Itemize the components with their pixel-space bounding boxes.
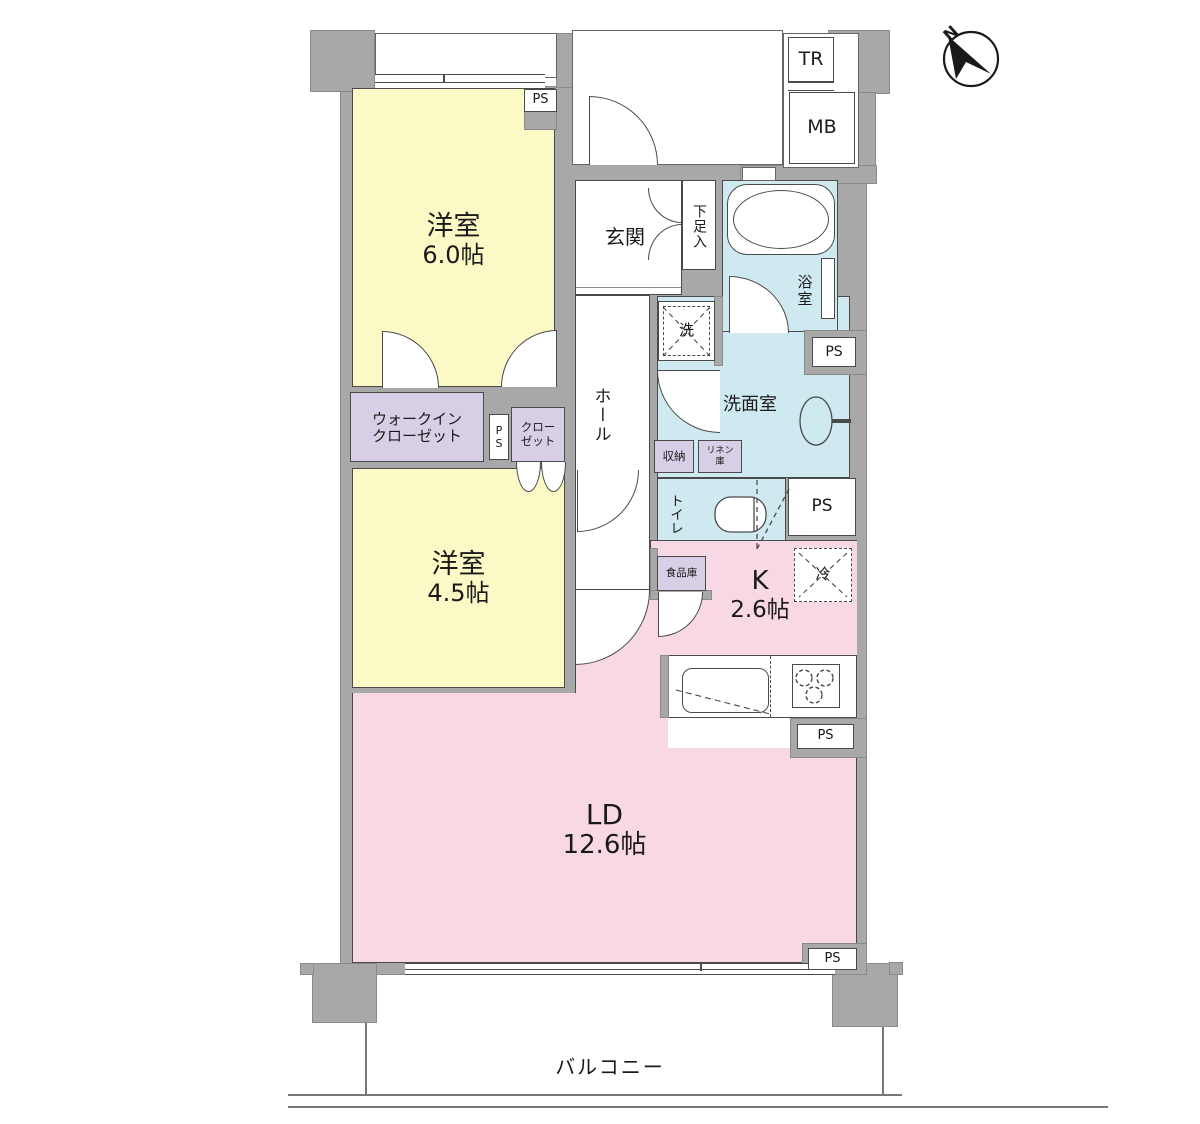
compass-north-label: N: [939, 22, 962, 45]
window-tick-bottom: [700, 963, 702, 971]
entry-doorstep: [742, 167, 776, 181]
floor-plan: TR MB PS PS PS PS PS PS 収納 リネン 庫: [0, 0, 1200, 1124]
wall-kitchen-ps-backing: [790, 718, 867, 758]
window-tick-top: [443, 74, 445, 83]
compass-north-icon: N: [939, 22, 998, 86]
tr-shelf: [788, 82, 834, 91]
balcony-label: バルコニー: [450, 1052, 770, 1082]
hall-label: ホール: [588, 376, 614, 454]
wall-counter-left: [660, 655, 669, 718]
bathtub: [727, 184, 835, 255]
bath-label: 浴室: [793, 262, 817, 320]
balcony-left-edge: [365, 1023, 367, 1095]
pillar-bottom-right-step: [889, 962, 903, 975]
counter-divider: [770, 656, 771, 717]
pillar-bottom-left: [312, 963, 377, 1023]
wall-nook-below-ps: [524, 111, 557, 130]
balcony-right-edge: [882, 1027, 884, 1095]
balcony-text: バルコニー: [555, 1056, 665, 1079]
shoe-cabinet-label: 下足入: [688, 192, 710, 260]
wall-ps-mid-backing: [804, 330, 867, 375]
ps-box-wic: PS: [489, 414, 509, 460]
window-ld-balcony: [405, 963, 835, 975]
wall-right-of-mb: [857, 92, 876, 168]
pillar-bottom-left-step: [300, 963, 314, 975]
bath-text: 浴室: [795, 274, 816, 308]
room-walk-in-closet: [350, 392, 484, 462]
under-counter-strip: [668, 718, 790, 748]
wall-washer-right: [714, 296, 723, 366]
fridge-space: [794, 548, 852, 602]
top-exterior-strip: [375, 33, 557, 78]
genkan-step-line: [576, 287, 681, 288]
wall-left-of-alcove: [556, 33, 573, 88]
room-bedroom2: [352, 468, 565, 688]
toilet-label: トイレ: [664, 481, 686, 547]
room-closet: [511, 407, 565, 462]
window-bedroom1: [375, 74, 545, 89]
ground-line: [288, 1106, 1108, 1108]
kitchen-sink: [682, 668, 769, 713]
washer-pan: [658, 301, 715, 361]
bathtub-inner: [733, 190, 829, 249]
washer-pan-dashed: [663, 306, 710, 356]
pillar-top-left: [310, 30, 375, 92]
trmb-outline: [783, 33, 859, 168]
shoe-cabinet-text: 下足入: [689, 204, 709, 249]
toilet-text: トイレ: [665, 494, 685, 535]
bath-counter: [821, 258, 835, 319]
ps-label-vertical: PS: [490, 415, 508, 459]
hall-text: ホール: [589, 387, 614, 444]
kitchen-stove: [792, 664, 840, 708]
balcony-floor-line: [288, 1094, 902, 1096]
